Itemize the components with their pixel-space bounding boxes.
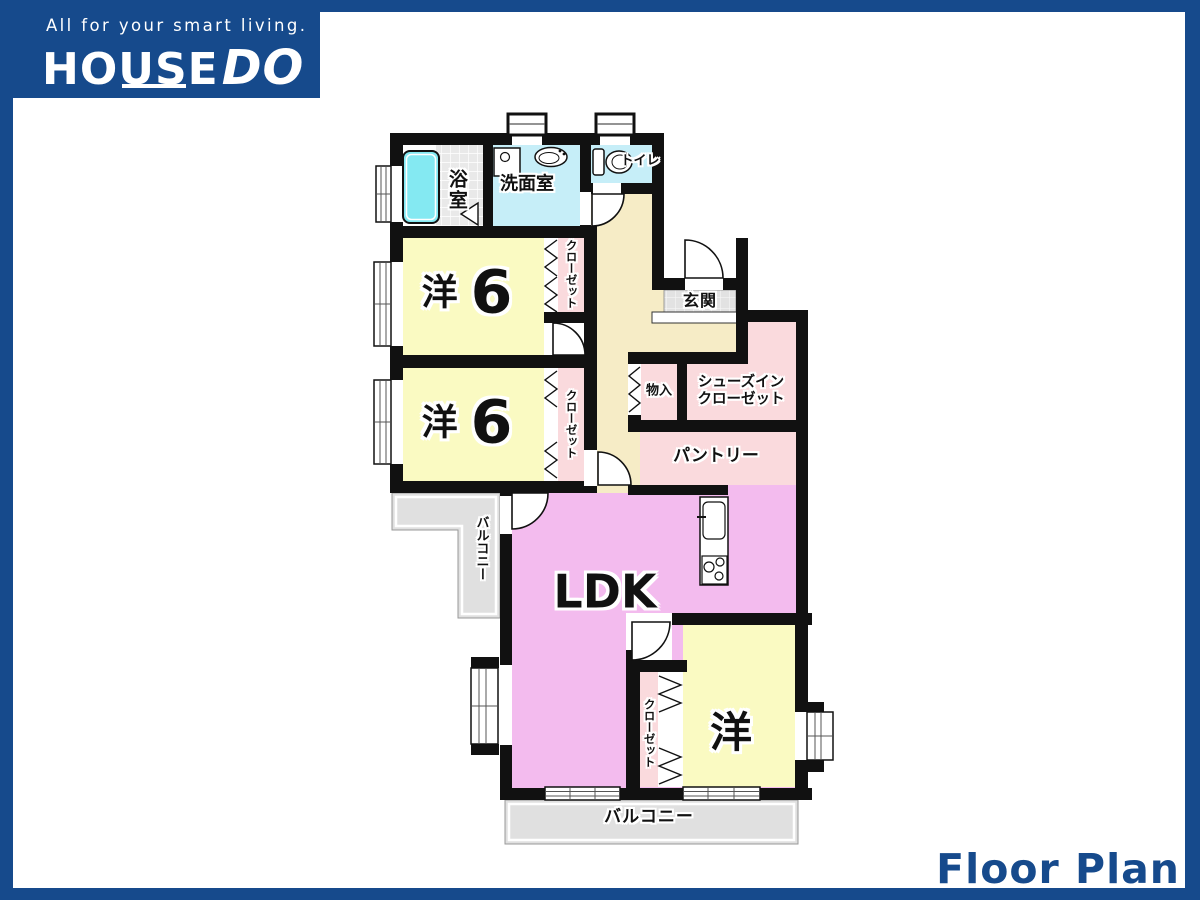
western-room1-size: 6 bbox=[471, 259, 513, 328]
entrance-label: 玄関 bbox=[683, 292, 717, 310]
wall-segment bbox=[483, 145, 493, 226]
western-room1-kanji: 洋 bbox=[422, 272, 458, 313]
closet2-label: クローゼット bbox=[564, 390, 577, 459]
wall-segment bbox=[796, 310, 808, 625]
bottom-balcony-label: バルコニー bbox=[604, 808, 694, 828]
wall-segment bbox=[672, 613, 812, 625]
wall-segment bbox=[390, 355, 597, 368]
stove-burner bbox=[704, 562, 714, 572]
western-room3-label: 洋 bbox=[710, 709, 752, 757]
closet1-label: クローゼット bbox=[564, 240, 577, 309]
sink-faucet-dot bbox=[563, 153, 566, 156]
toilet-tank bbox=[593, 149, 604, 175]
window bbox=[545, 787, 620, 800]
western-room2-kanji: 洋 bbox=[422, 402, 458, 443]
washing-machine-dial bbox=[501, 153, 510, 162]
wall-segment bbox=[677, 364, 687, 420]
shoes-closet-line1: シューズイン bbox=[698, 374, 784, 390]
western-room2-label: 洋6 bbox=[422, 389, 513, 458]
window-lintel bbox=[800, 702, 824, 712]
western-room3-floor bbox=[683, 625, 795, 787]
shoes-closet-upper-floor bbox=[748, 322, 796, 364]
door-opening bbox=[584, 450, 597, 486]
window bbox=[683, 787, 760, 800]
window-opening bbox=[390, 166, 403, 222]
window-opening bbox=[390, 262, 403, 346]
washing-machine-icon bbox=[494, 148, 520, 176]
window-opening bbox=[390, 380, 403, 464]
stove-burner bbox=[715, 572, 723, 580]
wall-segment bbox=[626, 650, 640, 800]
western-room1-label: 洋6 bbox=[422, 259, 513, 328]
storage-label: 物入 bbox=[646, 385, 672, 400]
washroom-label: 洗面室 bbox=[500, 175, 554, 196]
window-opening bbox=[500, 665, 512, 745]
wall-segment bbox=[628, 420, 796, 432]
wall-segment bbox=[544, 312, 597, 323]
window-opening bbox=[795, 712, 808, 760]
window-lintel bbox=[471, 744, 499, 755]
wall-segment bbox=[390, 226, 597, 238]
pantry-label: パントリー bbox=[673, 447, 759, 467]
bathroom-label: 浴室 bbox=[445, 169, 467, 211]
window-lintel bbox=[471, 657, 499, 668]
left-balcony-label: バルコニー bbox=[473, 516, 488, 581]
floor-plan-drawing bbox=[0, 0, 1200, 900]
shoes-closet-line2: クローゼット bbox=[698, 391, 785, 407]
western-room2-size: 6 bbox=[471, 389, 513, 458]
wall-segment bbox=[736, 238, 748, 364]
closet3-label: クローゼット bbox=[642, 699, 655, 768]
wall-segment bbox=[640, 660, 687, 672]
bathtub-icon bbox=[403, 151, 439, 223]
sink-faucet-dot bbox=[559, 150, 562, 153]
shoes-closet-label: シューズインクローゼット bbox=[698, 374, 785, 407]
entrance-door-arc bbox=[685, 240, 723, 278]
wall-segment bbox=[628, 485, 728, 495]
toilet-label: トイレ bbox=[620, 155, 659, 170]
door-opening bbox=[685, 278, 723, 290]
wall-segment bbox=[500, 493, 512, 800]
ldk-kitchen-floor bbox=[728, 485, 796, 495]
window-lintel bbox=[800, 760, 824, 772]
entrance-step bbox=[652, 312, 738, 323]
stove-burner bbox=[716, 558, 724, 566]
door-opening bbox=[580, 192, 591, 225]
floor-plan-title: Floor Plan bbox=[936, 845, 1180, 893]
kitchen-sink-icon bbox=[703, 502, 725, 539]
wall-segment bbox=[628, 352, 748, 364]
ldk-label: LDK bbox=[553, 566, 656, 619]
door-opening bbox=[500, 496, 512, 534]
wall-segment bbox=[390, 481, 597, 493]
door-opening bbox=[593, 183, 621, 194]
